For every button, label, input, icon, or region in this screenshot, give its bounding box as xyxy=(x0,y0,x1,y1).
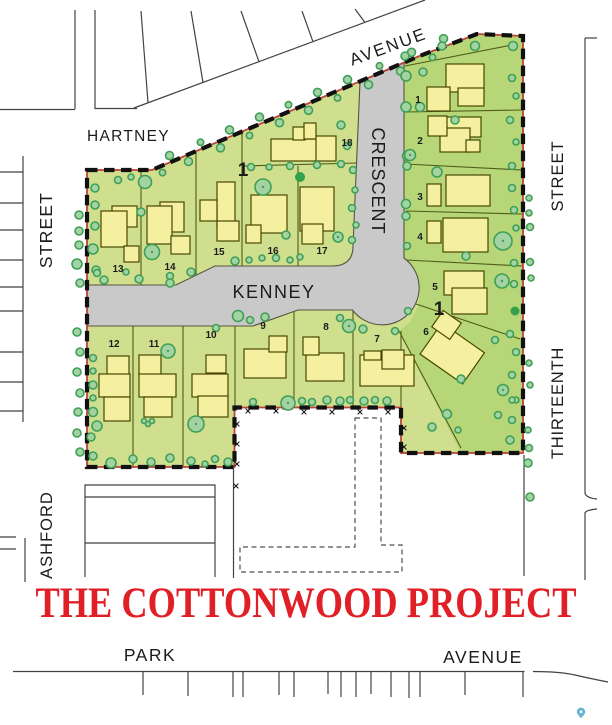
svg-text:9: 9 xyxy=(260,321,266,332)
svg-text:16: 16 xyxy=(267,246,279,257)
svg-text:10: 10 xyxy=(205,330,217,341)
svg-text:1: 1 xyxy=(415,95,421,106)
svg-text:17: 17 xyxy=(316,246,328,257)
svg-text:1: 1 xyxy=(238,160,249,181)
svg-text:4: 4 xyxy=(417,232,423,243)
svg-text:AVENUE: AVENUE xyxy=(443,647,523,667)
svg-text:CRESCENT: CRESCENT xyxy=(368,127,388,234)
svg-text:THE COTTONWOOD PROJECT: THE COTTONWOOD PROJECT xyxy=(36,580,577,627)
svg-text:STREET: STREET xyxy=(549,140,567,211)
svg-text:15: 15 xyxy=(213,247,225,258)
svg-text:HARTNEY: HARTNEY xyxy=(87,128,170,145)
svg-text:18: 18 xyxy=(341,138,353,149)
svg-text:THIRTEENTH: THIRTEENTH xyxy=(549,347,567,459)
svg-text:14: 14 xyxy=(164,262,176,273)
svg-text:PARK: PARK xyxy=(124,645,176,665)
svg-text:ASHFORD: ASHFORD xyxy=(38,491,56,579)
svg-text:KENNEY: KENNEY xyxy=(232,282,315,302)
svg-text:6: 6 xyxy=(423,327,429,338)
svg-text:13: 13 xyxy=(112,264,124,275)
svg-text:STREET: STREET xyxy=(36,192,56,268)
svg-text:12: 12 xyxy=(108,339,120,350)
svg-text:8: 8 xyxy=(323,322,329,333)
svg-text:5: 5 xyxy=(432,282,438,293)
svg-text:7: 7 xyxy=(374,334,380,345)
svg-text:1: 1 xyxy=(434,299,445,320)
svg-text:2: 2 xyxy=(417,136,423,147)
svg-text:3: 3 xyxy=(417,192,423,203)
svg-text:11: 11 xyxy=(149,339,160,350)
